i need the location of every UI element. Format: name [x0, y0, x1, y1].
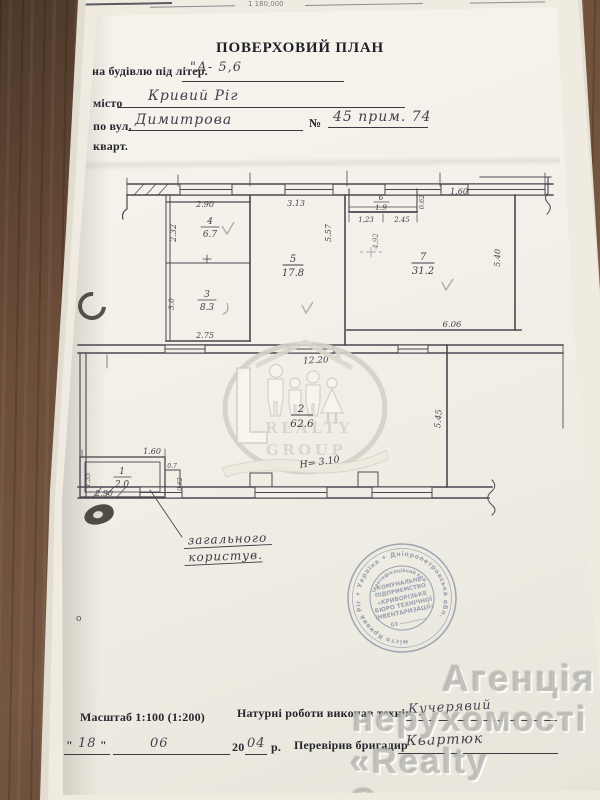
svg-text:03: 03	[390, 621, 399, 628]
svg-text:2.0: 2.0	[114, 480, 130, 490]
month-underline	[113, 754, 230, 755]
svg-text:4: 4	[206, 217, 213, 227]
floor-plan-page: ПОВЕРХОВИЙ ПЛАН на будівлю під літер. "А…	[0, 0, 600, 800]
svg-text:1.35: 1.35	[84, 473, 92, 487]
svg-text:5: 5	[290, 254, 296, 265]
svg-text:1,23: 1,23	[358, 216, 374, 224]
svg-text:4,92: 4,92	[372, 233, 380, 250]
prev-page-line	[305, 3, 423, 6]
svg-text:0.62: 0.62	[177, 477, 184, 491]
prev-page-fragment: 1 180,000	[248, 0, 284, 8]
svg-text:0.62: 0.62	[418, 195, 426, 209]
common-use-note: загального користув.	[183, 530, 272, 565]
prev-page-line	[150, 5, 235, 7]
small-o-mark: о	[76, 614, 81, 624]
agency-watermark-line2: нерухомості	[352, 700, 588, 740]
svg-text:0.7: 0.7	[167, 463, 177, 470]
scale-label: Масштаб 1:100 (1:200)	[80, 710, 205, 725]
svg-text:12.20: 12.20	[303, 355, 330, 366]
svg-text:5.45: 5.45	[433, 409, 445, 429]
year-prefix: 20	[232, 740, 244, 755]
year-underline	[245, 754, 267, 755]
svg-text:2.45: 2.45	[393, 216, 410, 224]
svg-text:6.06: 6.06	[443, 320, 463, 330]
svg-text:1.9: 1.9	[375, 203, 387, 212]
day-value: 18	[78, 736, 97, 751]
svg-text:2.32: 2.32	[169, 224, 178, 243]
month-value: 06	[150, 736, 169, 751]
day-quote-open: "	[66, 738, 73, 753]
svg-text:2: 2	[297, 403, 305, 415]
svg-text:62.6: 62.6	[290, 418, 314, 430]
svg-text:1.60: 1.60	[143, 447, 161, 456]
plan-walls	[78, 171, 563, 537]
agency-watermark-line1: Агенція	[442, 658, 596, 700]
day-quote-close: "	[100, 738, 107, 753]
svg-text:2.75: 2.75	[195, 331, 214, 340]
svg-text:5.57: 5.57	[324, 223, 333, 242]
svg-text:17.8: 17.8	[282, 268, 304, 279]
photo-of-floor-plan-document: 1 180,000 ПОВЕРХОВИЙ ПЛАН на будівлю під…	[0, 0, 600, 800]
svg-text:31.2: 31.2	[412, 266, 434, 277]
svg-text:6: 6	[379, 193, 384, 202]
svg-text:1.60: 1.60	[450, 187, 468, 196]
year-value: 04	[247, 736, 266, 751]
svg-text:7: 7	[420, 252, 427, 263]
svg-text:5.40: 5.40	[493, 249, 503, 267]
year-suffix: р.	[271, 740, 281, 755]
svg-text:3.0: 3.0	[167, 298, 176, 310]
prev-page-line	[470, 1, 545, 3]
svg-text:3: 3	[204, 290, 210, 300]
svg-text:2.90: 2.90	[94, 489, 113, 498]
svg-text:8.3: 8.3	[200, 303, 215, 313]
svg-text:3.13: 3.13	[287, 199, 305, 208]
logo-letter-l	[237, 368, 267, 443]
bti-round-stamp: місто Кривий Ріг ✦ Україна ✦ Дніпропетро…	[338, 534, 466, 662]
svg-text:6.7: 6.7	[203, 230, 218, 240]
svg-text:2.90: 2.90	[195, 200, 214, 209]
svg-text:1: 1	[119, 467, 125, 477]
day-underline	[64, 754, 110, 755]
wall-hatching	[134, 184, 168, 195]
